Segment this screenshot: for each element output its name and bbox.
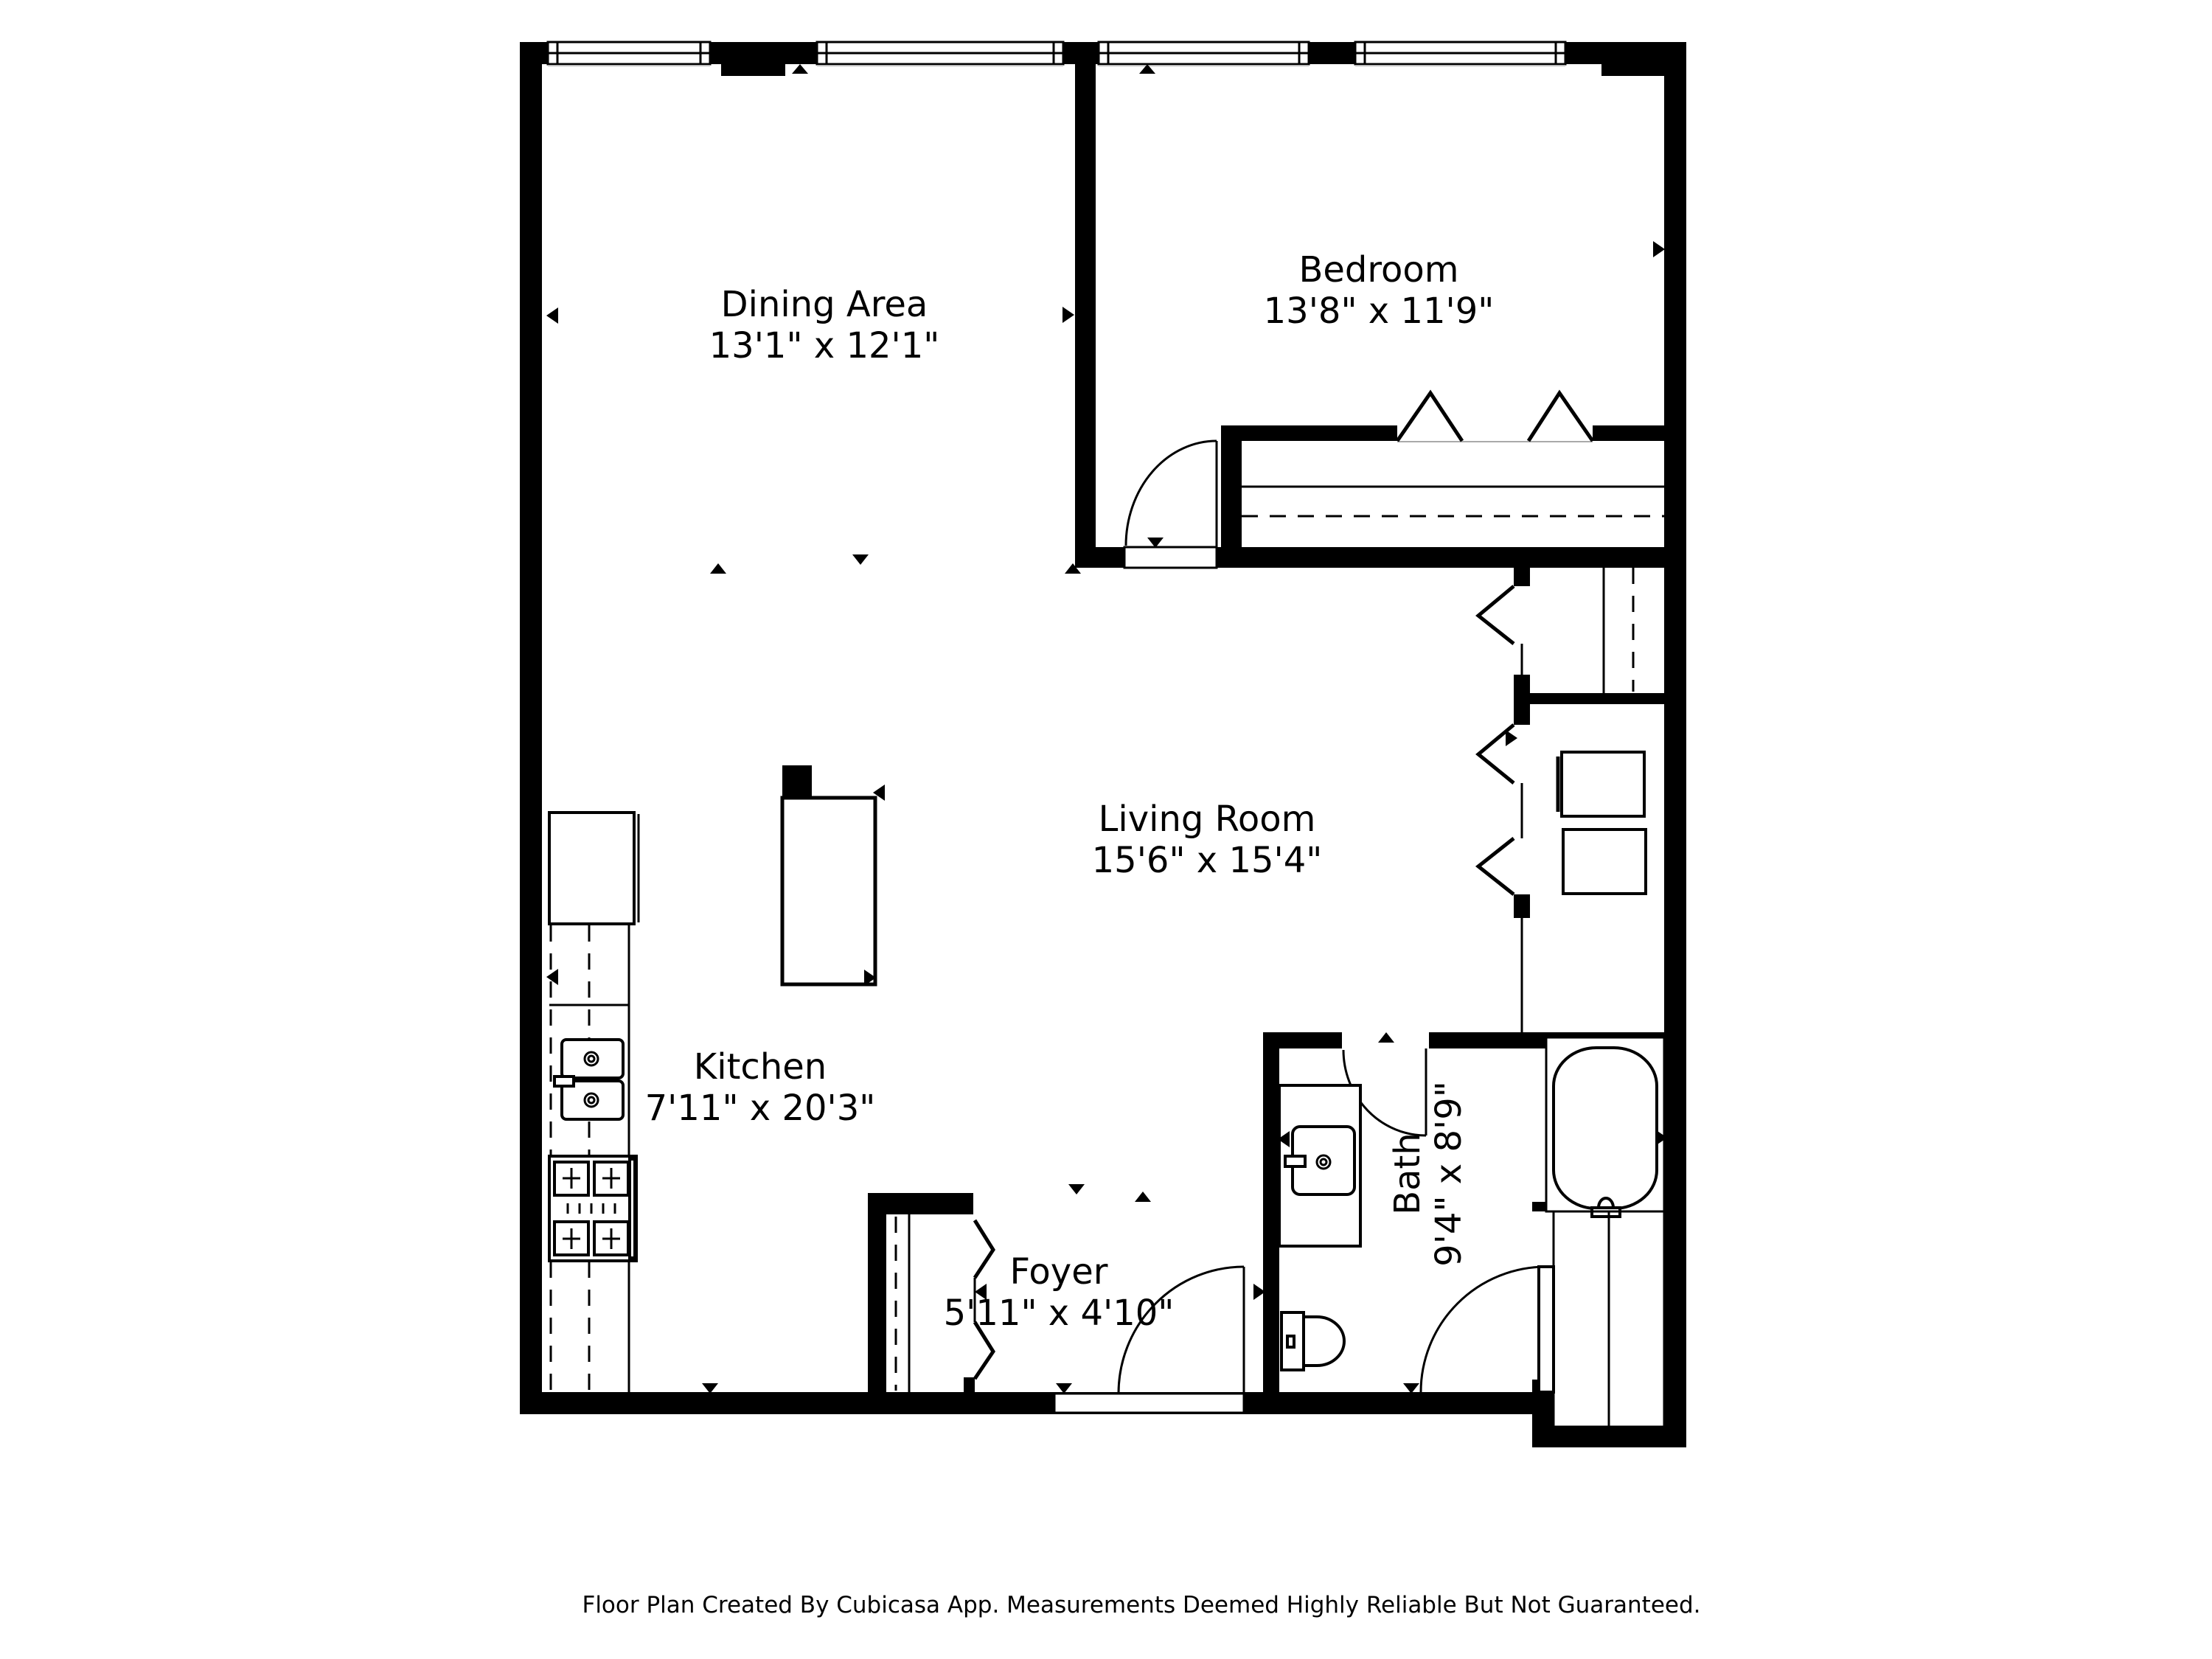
- bedroom-label: Bedroom: [1298, 249, 1458, 291]
- appliance-box-upper: [1562, 752, 1644, 816]
- hall-closet1-stub-top: [1514, 568, 1530, 586]
- direction-marker: [1056, 1383, 1072, 1394]
- direction-marker: [1068, 1184, 1085, 1194]
- bifold-door-icon: [975, 1220, 993, 1278]
- hall-closet-upper: [1478, 568, 1633, 693]
- linen-closet-bottom-wall: [1532, 1427, 1686, 1447]
- direction-marker: [1378, 1032, 1394, 1043]
- window-4: [1355, 42, 1565, 66]
- direction-marker: [1506, 730, 1517, 746]
- window-3: [1099, 42, 1309, 66]
- linen-closet: [1554, 1211, 1664, 1427]
- island-counter: [782, 798, 875, 984]
- bath-dimensions: 9'4" x 8'9": [1428, 1081, 1470, 1267]
- floor-plan-page: { "colors": { "wall": "#000000", "backgr…: [0, 0, 2212, 1659]
- bedroom-door: [1124, 441, 1217, 568]
- stove-cooktop: [549, 1156, 636, 1261]
- living-room-label: Living Room: [1099, 799, 1316, 840]
- direction-marker: [1135, 1192, 1151, 1202]
- kitchen-island: [782, 765, 875, 984]
- top-right-corner-pier: [1601, 64, 1664, 76]
- dining-area-label: Dining Area: [721, 284, 928, 325]
- kitchen-dimensions: 7'11" x 20'3": [645, 1088, 876, 1129]
- room-labels: Dining Area 13'1" x 12'1" Bedroom 13'8" …: [645, 249, 1495, 1334]
- bedroom-closet: [1242, 393, 1664, 516]
- hall-closet-divider-wall: [1514, 693, 1664, 704]
- bifold-door-icon: [1397, 393, 1462, 441]
- bathtub: [1546, 1037, 1664, 1217]
- foyer-label: Foyer: [1010, 1251, 1108, 1293]
- linen-closet-door: [1421, 1267, 1554, 1392]
- door-swing-arc: [1126, 441, 1217, 546]
- direction-marker: [1653, 241, 1665, 257]
- left-wall: [520, 42, 542, 1414]
- window-1: [548, 42, 710, 66]
- hall-closet1-stub-bottom: [1514, 675, 1530, 693]
- kitchen-label: Kitchen: [694, 1046, 827, 1088]
- bifold-door-icon: [1478, 838, 1514, 894]
- door-leaf: [1539, 1267, 1554, 1392]
- footer-disclaimer: Floor Plan Created By Cubicasa App. Meas…: [582, 1592, 1700, 1618]
- foyer-closet-stub-bottom: [964, 1377, 975, 1392]
- door-swing-arc: [1421, 1267, 1546, 1392]
- dining-bedroom-wall: [1075, 64, 1096, 568]
- bedroom-dimensions: 13'8" x 11'9": [1264, 291, 1495, 332]
- bath-bottom-wall: [1263, 1392, 1541, 1414]
- direction-marker: [546, 969, 558, 985]
- dining-area-dimensions: 13'1" x 12'1": [709, 325, 940, 366]
- faucet-icon: [1285, 1156, 1305, 1166]
- bath-top-wall-left: [1263, 1032, 1342, 1048]
- direction-marker: [1062, 307, 1074, 323]
- bath-label: Bath: [1387, 1133, 1428, 1215]
- bathroom-fixtures: [1279, 1037, 1664, 1427]
- toilet: [1281, 1312, 1344, 1370]
- bifold-door-icon: [1478, 586, 1514, 644]
- refrigerator: [549, 813, 634, 924]
- kitchen-sink: [554, 1040, 623, 1119]
- flush-button-icon: [1287, 1336, 1294, 1347]
- direction-marker: [852, 554, 869, 565]
- foyer-closet-left-wall: [868, 1193, 886, 1392]
- direction-marker: [792, 64, 808, 74]
- bedroom-closet-front-wall-right: [1593, 425, 1664, 441]
- windows: [548, 42, 1565, 66]
- hall-closet2-stub-bottom: [1514, 894, 1530, 918]
- bifold-door-icon: [1528, 393, 1593, 441]
- direction-marker: [710, 563, 726, 574]
- kitchen-fixtures: [549, 813, 639, 1392]
- island-column: [782, 765, 812, 798]
- outer-walls: [520, 42, 1686, 1447]
- tub-basin: [1554, 1048, 1657, 1208]
- doors: [1054, 441, 1554, 1413]
- direction-marker: [1403, 1383, 1419, 1394]
- vanity-sink: [1279, 1085, 1360, 1246]
- foyer-dimensions: 5'11" x 4'10": [944, 1293, 1175, 1334]
- direction-markers: [546, 64, 1667, 1394]
- bedroom-bottom-wall-left: [1075, 547, 1124, 568]
- direction-marker: [546, 307, 558, 324]
- window-2: [817, 42, 1063, 66]
- bedroom-closet-front-wall-left: [1221, 425, 1397, 441]
- bath-left-wall: [1263, 1048, 1279, 1392]
- bedroom-bottom-wall-right: [1217, 547, 1664, 568]
- bedroom-closet-side-wall: [1221, 441, 1242, 547]
- direction-marker: [702, 1383, 718, 1394]
- faucet-icon: [554, 1077, 574, 1086]
- appliance-box-lower: [1563, 829, 1646, 894]
- floor-plan-canvas: Dining Area 13'1" x 12'1" Bedroom 13'8" …: [0, 0, 2212, 1659]
- hall-closet-lower: [1478, 725, 1646, 1032]
- top-wall-pier: [721, 64, 785, 76]
- living-room-dimensions: 15'6" x 15'4": [1092, 840, 1323, 881]
- hall-closet2-stub-top: [1514, 704, 1530, 725]
- right-wall: [1664, 42, 1686, 1447]
